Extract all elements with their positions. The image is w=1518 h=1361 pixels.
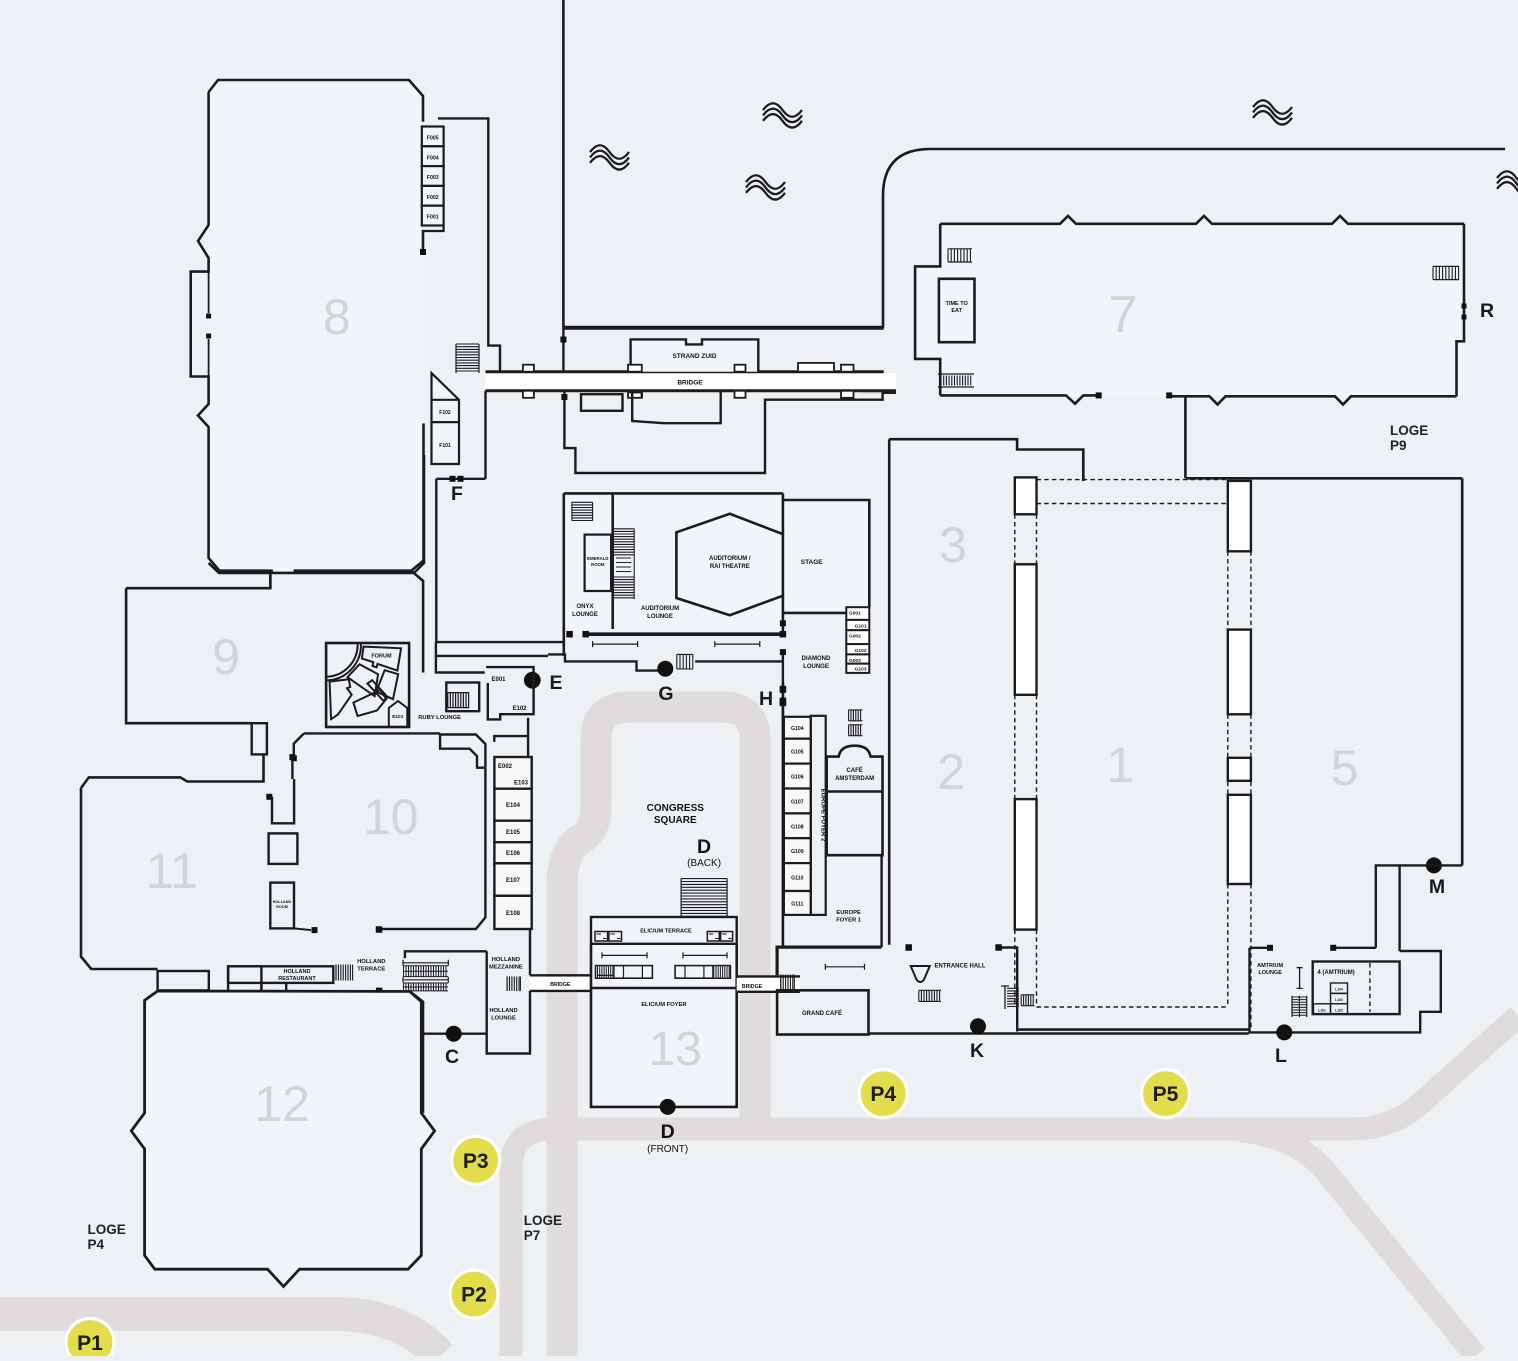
svg-text:ONYX: ONYX bbox=[576, 604, 593, 610]
svg-text:G003: G003 bbox=[849, 658, 861, 664]
svg-text:E103: E103 bbox=[514, 781, 529, 787]
svg-text:LOUNGE: LOUNGE bbox=[803, 664, 829, 670]
svg-text:STAGE: STAGE bbox=[801, 559, 824, 566]
svg-text:P5: P5 bbox=[1153, 1083, 1179, 1106]
svg-text:FOYER 1: FOYER 1 bbox=[836, 918, 862, 924]
svg-text:ROOM: ROOM bbox=[276, 905, 288, 909]
svg-text:P4: P4 bbox=[88, 1237, 105, 1252]
svg-text:P1: P1 bbox=[77, 1332, 103, 1355]
svg-text:F001: F001 bbox=[427, 215, 439, 221]
svg-text:LOGE: LOGE bbox=[524, 1213, 562, 1228]
svg-text:G109: G109 bbox=[791, 849, 804, 855]
svg-text:F004: F004 bbox=[427, 155, 439, 161]
svg-text:ELICIUM TERRACE: ELICIUM TERRACE bbox=[640, 929, 692, 935]
svg-text:E107: E107 bbox=[506, 878, 521, 884]
svg-text:AMSTERDAM: AMSTERDAM bbox=[835, 776, 874, 782]
svg-text:G101: G101 bbox=[855, 624, 867, 630]
svg-text:13: 13 bbox=[649, 1023, 702, 1076]
svg-text:EUROPE FOYER 2: EUROPE FOYER 2 bbox=[820, 789, 826, 842]
svg-text:(BACK): (BACK) bbox=[687, 858, 721, 869]
svg-text:BRIDGE: BRIDGE bbox=[550, 982, 571, 988]
svg-text:EAT: EAT bbox=[951, 308, 962, 314]
svg-text:L: L bbox=[1275, 1045, 1287, 1067]
svg-text:P2: P2 bbox=[461, 1284, 487, 1307]
svg-text:3: 3 bbox=[939, 517, 967, 573]
svg-text:BRIDGE: BRIDGE bbox=[677, 380, 703, 387]
svg-text:G107: G107 bbox=[791, 800, 804, 806]
svg-text:M: M bbox=[1429, 876, 1445, 898]
svg-text:ELICIUM FOYER: ELICIUM FOYER bbox=[641, 1002, 687, 1008]
svg-text:EUROPE: EUROPE bbox=[836, 910, 861, 916]
svg-text:G106: G106 bbox=[791, 775, 804, 781]
svg-text:F: F bbox=[451, 483, 463, 505]
svg-text:LOUNGE: LOUNGE bbox=[491, 1016, 516, 1022]
svg-text:TERRACE: TERRACE bbox=[357, 967, 385, 973]
svg-text:F101: F101 bbox=[439, 443, 451, 449]
svg-text:P9: P9 bbox=[1390, 438, 1407, 453]
svg-text:F003: F003 bbox=[427, 175, 439, 181]
svg-text:P4: P4 bbox=[870, 1083, 896, 1106]
svg-text:E101: E101 bbox=[392, 714, 404, 720]
svg-text:HOLLAND: HOLLAND bbox=[284, 969, 311, 975]
svg-text:G104: G104 bbox=[791, 726, 804, 732]
svg-text:HOLLAND: HOLLAND bbox=[489, 1008, 517, 1014]
svg-text:R: R bbox=[1480, 300, 1494, 322]
svg-text:G103: G103 bbox=[855, 666, 867, 672]
svg-text:(FRONT): (FRONT) bbox=[647, 1144, 688, 1155]
svg-text:E104: E104 bbox=[506, 803, 521, 809]
svg-text:G002: G002 bbox=[849, 634, 861, 640]
svg-text:G105: G105 bbox=[791, 750, 804, 756]
svg-text:AUDITORIUM /: AUDITORIUM / bbox=[709, 556, 751, 562]
svg-text:E108: E108 bbox=[506, 911, 521, 917]
svg-text:DIAMOND: DIAMOND bbox=[802, 656, 831, 662]
svg-text:10: 10 bbox=[363, 789, 419, 845]
svg-text:G108: G108 bbox=[791, 824, 804, 830]
svg-text:G111: G111 bbox=[791, 902, 803, 908]
svg-text:FORUM: FORUM bbox=[371, 654, 392, 660]
svg-text:H: H bbox=[759, 688, 773, 710]
svg-text:RUBY LOUNGE: RUBY LOUNGE bbox=[418, 715, 461, 721]
svg-text:E001: E001 bbox=[491, 677, 506, 683]
svg-text:LOUNGE: LOUNGE bbox=[647, 614, 673, 620]
svg-text:L103: L103 bbox=[1335, 998, 1343, 1002]
svg-text:LOUNGE: LOUNGE bbox=[572, 612, 598, 618]
svg-text:AMTRIUM: AMTRIUM bbox=[1257, 963, 1283, 969]
svg-text:F102: F102 bbox=[439, 410, 451, 416]
svg-text:F002: F002 bbox=[427, 195, 439, 201]
svg-text:HOLLAND: HOLLAND bbox=[273, 900, 292, 904]
svg-text:4 (AMTRIUM): 4 (AMTRIUM) bbox=[1317, 970, 1354, 976]
svg-text:CAFÉ: CAFÉ bbox=[846, 766, 862, 774]
svg-text:CONGRESS: CONGRESS bbox=[647, 803, 705, 814]
svg-text:L104: L104 bbox=[1335, 988, 1343, 992]
svg-text:E106: E106 bbox=[506, 851, 521, 857]
svg-text:12: 12 bbox=[254, 1076, 310, 1132]
svg-text:HOLLAND: HOLLAND bbox=[492, 957, 520, 963]
svg-text:G: G bbox=[658, 683, 673, 705]
svg-text:7: 7 bbox=[1108, 286, 1137, 344]
svg-text:E002: E002 bbox=[498, 764, 513, 770]
svg-text:AUDITORIUM: AUDITORIUM bbox=[641, 606, 679, 612]
svg-text:E105: E105 bbox=[506, 830, 521, 836]
svg-text:MEZZANINE: MEZZANINE bbox=[489, 965, 523, 971]
svg-text:TIME TO: TIME TO bbox=[946, 301, 969, 307]
svg-text:11: 11 bbox=[146, 843, 198, 899]
svg-text:LOGE: LOGE bbox=[88, 1222, 126, 1237]
svg-text:EMERALD: EMERALD bbox=[587, 556, 608, 561]
svg-text:ENTRANCE HALL: ENTRANCE HALL bbox=[935, 964, 986, 970]
svg-text:5: 5 bbox=[1331, 740, 1359, 796]
svg-text:G110: G110 bbox=[791, 876, 804, 882]
svg-text:9: 9 bbox=[212, 629, 240, 685]
svg-text:F005: F005 bbox=[427, 136, 439, 142]
svg-text:STRAND ZUID: STRAND ZUID bbox=[672, 353, 716, 360]
svg-text:D: D bbox=[661, 1121, 675, 1143]
svg-text:RESTAURANT: RESTAURANT bbox=[278, 976, 316, 982]
svg-text:E102: E102 bbox=[512, 706, 527, 712]
svg-text:SQUARE: SQUARE bbox=[654, 815, 697, 826]
svg-text:BRIDGE: BRIDGE bbox=[742, 984, 763, 990]
svg-text:P7: P7 bbox=[524, 1228, 541, 1243]
svg-text:G102: G102 bbox=[855, 648, 867, 654]
svg-text:HOLLAND: HOLLAND bbox=[357, 959, 385, 965]
svg-text:LOGE: LOGE bbox=[1390, 423, 1428, 438]
svg-text:2: 2 bbox=[937, 744, 965, 800]
svg-text:LOUNGE: LOUNGE bbox=[1258, 970, 1282, 976]
svg-text:E: E bbox=[549, 672, 562, 694]
svg-text:K: K bbox=[970, 1040, 984, 1062]
svg-text:P3: P3 bbox=[463, 1150, 489, 1173]
svg-text:L101: L101 bbox=[1318, 1008, 1326, 1012]
svg-text:ROOM: ROOM bbox=[591, 562, 605, 567]
svg-text:C: C bbox=[445, 1046, 459, 1068]
svg-text:G001: G001 bbox=[849, 611, 861, 617]
svg-text:GRAND CAFÉ: GRAND CAFÉ bbox=[802, 1009, 842, 1017]
svg-text:L102: L102 bbox=[1335, 1008, 1343, 1012]
svg-text:1: 1 bbox=[1106, 737, 1134, 793]
svg-text:8: 8 bbox=[323, 289, 351, 345]
svg-text:RAI THEATRE: RAI THEATRE bbox=[710, 564, 750, 570]
svg-text:D: D bbox=[697, 836, 711, 858]
